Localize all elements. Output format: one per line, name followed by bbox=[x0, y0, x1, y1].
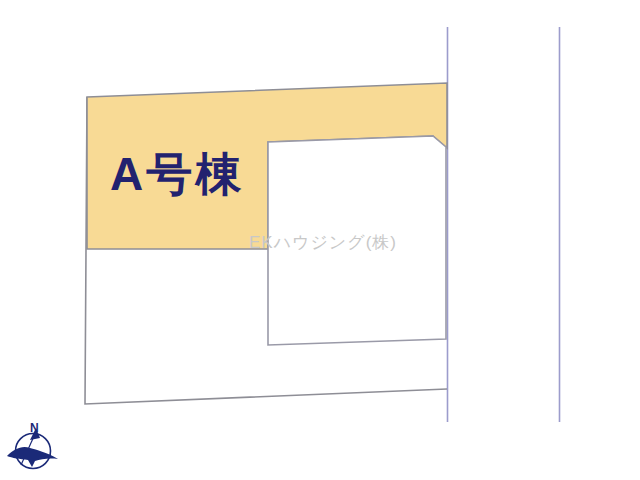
lot-a-label: A号棟 bbox=[110, 144, 244, 206]
compass-north-label: N bbox=[30, 421, 39, 435]
watermark: EKハウジング(株) bbox=[249, 231, 397, 254]
site-plan: A号棟 EKハウジング(株) N bbox=[0, 0, 640, 480]
